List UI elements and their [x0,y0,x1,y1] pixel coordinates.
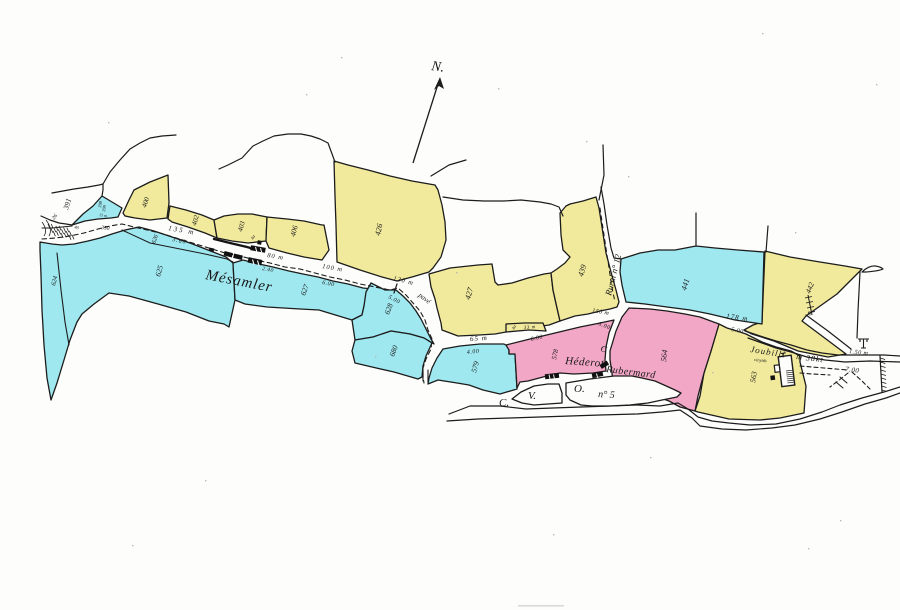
svg-text:564: 564 [659,349,669,362]
svg-text:N.: N. [429,59,445,76]
svg-text:V.: V. [528,390,536,402]
svg-text:33 m: 33 m [524,325,536,331]
svg-text:n° 5: n° 5 [598,389,615,401]
svg-text:O.: O. [574,383,585,395]
svg-text:4.00: 4.00 [466,348,479,356]
svg-text:C.: C. [499,397,509,409]
svg-text:65 m: 65 m [470,334,488,343]
